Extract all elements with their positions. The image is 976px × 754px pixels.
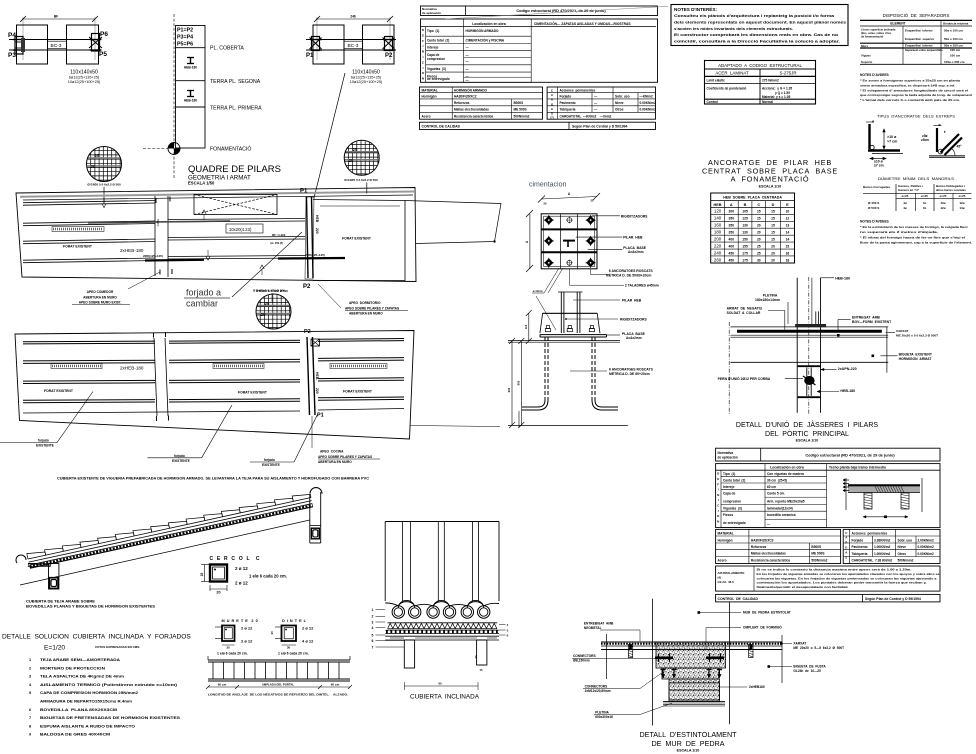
svg-text:I: I	[171, 269, 173, 276]
svg-text:DEL PÒRTIC PRINCIPAL: DEL PÒRTIC PRINCIPAL	[765, 429, 849, 438]
svg-text:ARMAT DE NEGATIU: ARMAT DE NEGATIU	[727, 307, 763, 311]
svg-text:I: I	[159, 269, 161, 276]
svg-text:25: 25	[265, 301, 270, 306]
svg-text:ABERTURA EN MURO: ABERTURA EN MURO	[318, 460, 352, 464]
svg-text:CE Art. 48.3: CE Art. 48.3	[718, 580, 735, 584]
svg-text:ESCALA 1/10: ESCALA 1/10	[759, 184, 782, 188]
svg-text:Control: Control	[707, 100, 718, 104]
svg-text:Ø 400 S: Ø 400 S	[868, 201, 879, 205]
svg-text:(7): (7)	[550, 116, 553, 120]
svg-text:El constructor comprobarà les: El constructor comprobarà les dimensions…	[674, 33, 838, 37]
svg-text:≥7 cm: ≥7 cm	[874, 164, 884, 168]
svg-text:Refuerzos: Refuerzos	[751, 545, 767, 549]
svg-text:PLACA BASE: PLACA BASE	[622, 332, 646, 336]
svg-text:XARXAT: XARXAT	[793, 642, 806, 646]
svg-text:ØF =1.460: ØF =1.460	[272, 233, 286, 237]
svg-text:muro: muro	[156, 219, 160, 226]
svg-text:2.00KN/m2: 2.00KN/m2	[918, 538, 935, 542]
svg-text:HORMIGON ARMAT: HORMIGON ARMAT	[899, 357, 933, 361]
svg-text:BIGUETA EXISTENT: BIGUETA EXISTENT	[899, 353, 933, 357]
svg-text:40: 40	[270, 631, 274, 635]
svg-text:Coeficients de ponderació: Coeficients de ponderació	[707, 87, 747, 91]
svg-text:1: 1	[372, 608, 374, 612]
svg-text:2 TALADRES ø45mm: 2 TALADRES ø45mm	[625, 284, 659, 288]
svg-text:Según Plan de Control y D 59/1: Según Plan de Control y D 59/1994	[865, 597, 921, 601]
svg-text:Material: γ s = 1.05: Material: γ s = 1.05	[762, 95, 790, 99]
svg-text:Flecos: Flecos	[723, 513, 733, 517]
svg-text:7: 7	[29, 716, 31, 720]
svg-text:BIGUETAS DE PRETENSADAS DE HOR: BIGUETAS DE PRETENSADAS DE HORMIGON EXIS…	[40, 716, 181, 720]
svg-text:de fonamentació): de fonamentació)	[861, 35, 883, 39]
svg-text:1.00KN/m2: 1.00KN/m2	[874, 552, 891, 556]
svg-text:BC-3: BC-3	[348, 43, 359, 49]
svg-text:que correspongui segons la tau: que correspongui segons la taula adjunta…	[860, 93, 972, 97]
svg-text:10ø12(25+100+25): 10ø12(25+100+25)	[68, 80, 101, 84]
svg-text:4: 4	[372, 626, 374, 630]
svg-text:PL. COBERTA: PL. COBERTA	[210, 46, 244, 52]
svg-text:TEJA ARABE SEMI—AMORTERADA: TEJA ARABE SEMI—AMORTERADA	[40, 658, 120, 662]
svg-text:220: 220	[315, 388, 319, 394]
svg-text:compresion: compresion	[723, 500, 741, 504]
svg-text:I: I	[165, 332, 167, 339]
svg-text:AMPLADA DEL PORTAL: AMPLADA DEL PORTAL	[262, 683, 295, 687]
svg-text:180: 180	[714, 230, 722, 235]
svg-text:forjado: forjado	[174, 454, 185, 458]
svg-text:350: 350	[729, 231, 735, 235]
svg-text:B500S: B500S	[811, 545, 821, 549]
svg-text:125: 125	[742, 217, 748, 221]
svg-text:continuación los apuntalados.: continuación los apuntalados. Los puntal…	[757, 581, 927, 585]
svg-text:BIGUETA DE FUSTA: BIGUETA DE FUSTA	[793, 665, 826, 669]
svg-text:A FONAMENTACIÓ: A FONAMENTACIÓ	[731, 175, 810, 184]
svg-text:Intereje: Intereje	[723, 485, 735, 489]
svg-text:50ø o 100 cm: 50ø o 100 cm	[944, 29, 963, 33]
svg-text:BC-3: BC-3	[51, 43, 62, 49]
svg-text:CARGATOTAL —KN/m2 —/mm2: CARGATOTAL —KN/m2 —/mm2	[560, 114, 612, 118]
svg-text:400: 400	[729, 237, 735, 241]
svg-text:1 e/ø 6 cada 20 cm.: 1 e/ø 6 cada 20 cm.	[249, 574, 287, 579]
svg-text:ø>25: ø>25	[921, 194, 928, 198]
svg-text:sense armadura específica, es: sense armadura específica, es disposarà …	[860, 83, 955, 87]
svg-text:3: 3	[372, 620, 374, 624]
svg-text:ESCALA 1/10: ESCALA 1/10	[796, 439, 819, 443]
svg-text:Si no se indica lo contrario l: Si no se indica lo contrario la distanci…	[757, 568, 912, 572]
svg-text:10ø: 10ø	[940, 201, 945, 205]
svg-text:15: 15	[757, 210, 761, 214]
svg-text:Emparrillat inferior: Emparrillat inferior	[905, 44, 934, 48]
svg-text:Nieve: Nieve	[615, 101, 624, 105]
svg-text:APEO DORMITORIO: APEO DORMITORIO	[349, 301, 381, 305]
svg-text:de entrevigado: de entrevigado	[723, 521, 746, 525]
svg-text:Nieve: Nieve	[898, 545, 907, 549]
svg-text:13: 13	[786, 224, 790, 228]
svg-text:CAPA DE COMPRESION HORMIGON 25: CAPA DE COMPRESION HORMIGON 25N/mm2	[40, 691, 138, 695]
svg-text:>10 ø: >10 ø	[887, 135, 897, 139]
svg-text:Tipo (1): Tipo (1)	[723, 472, 735, 476]
svg-text:Emparrillat inferior: Emparrillat inferior	[905, 29, 934, 33]
svg-text:20: 20	[91, 164, 96, 169]
svg-text:CONTROL DE CALIDAD: CONTROL DE CALIDAD	[422, 125, 461, 129]
svg-text:B500S: B500S	[514, 101, 524, 105]
svg-text:ABERTURA EN MURO: ABERTURA EN MURO	[83, 296, 117, 300]
svg-text:5: 5	[29, 691, 31, 695]
svg-text:6ø12(25+135+25): 6ø12(25+135+25)	[351, 76, 382, 80]
svg-text:MUR DE PEDRA ESTINTOLAT: MUR DE PEDRA ESTINTOLAT	[743, 611, 791, 615]
svg-text:220: 220	[714, 243, 722, 248]
svg-text:Techo planta baja tramo interm: Techo planta baja tramo intermedio	[829, 466, 886, 470]
svg-text:Sobr. uso: Sobr. uso	[898, 538, 913, 542]
svg-text:7ø: 7ø	[923, 206, 927, 210]
svg-text:D: D	[772, 203, 775, 207]
svg-text:HEB-180: HEB-180	[184, 99, 197, 103]
svg-text:60: 60	[438, 682, 442, 686]
svg-text:800: 800	[517, 380, 521, 385]
svg-text:20: 20	[757, 237, 761, 241]
svg-text:I: I	[156, 416, 158, 423]
svg-text:160: 160	[714, 223, 722, 228]
svg-text:15: 15	[771, 224, 775, 228]
svg-text:900: 900	[507, 387, 511, 392]
svg-text:Acero: Acero	[422, 114, 431, 118]
svg-text:25: 25	[757, 251, 761, 255]
svg-text:TERRA PL. SEGONA: TERRA PL. SEGONA	[210, 79, 261, 85]
svg-text:EXISTENTE: EXISTENTE	[172, 459, 190, 463]
svg-text:ME 500S: ME 500S	[811, 552, 824, 556]
svg-text:ME 20x20 o 5—5 6x2,2 Ø 5: ME 20x20 o 5—5 6x2,2 Ø 500T	[793, 646, 844, 650]
svg-text:100 cm: 100 cm	[950, 54, 961, 58]
svg-text:ø>25: ø>25	[959, 194, 966, 198]
svg-text:Límit elàstic: Límit elàstic	[707, 79, 726, 83]
svg-text:30: 30	[226, 646, 230, 650]
svg-text:12ø: 12ø	[959, 201, 964, 205]
svg-text:110: 110	[524, 324, 528, 329]
svg-text:200: 200	[714, 236, 722, 241]
svg-text:XARXAT: XARXAT	[896, 329, 909, 333]
svg-text:ØB,150mm: ØB,150mm	[573, 659, 590, 663]
svg-text:Mallas electrosoldadas: Mallas electrosoldadas	[751, 552, 786, 556]
svg-text:APEO SOBRE PILARES Y ZAPATAS: APEO SOBRE PILARES Y ZAPATAS	[345, 307, 399, 311]
svg-text:P2: P2	[385, 53, 393, 59]
svg-text:P2: P2	[304, 329, 311, 335]
svg-text:HORMIGÓN ARMADO: HORMIGÓN ARMADO	[466, 28, 500, 33]
svg-text:Barres Corrugades: Barres Corrugades	[863, 185, 891, 189]
svg-text:7: 7	[372, 645, 374, 649]
svg-text:105: 105	[742, 210, 748, 214]
svg-text:FORAT EXISTENT: FORAT EXISTENT	[342, 237, 372, 241]
svg-text:F: F	[717, 482, 719, 486]
svg-text:no superarà els 2 metres d'alç: no superarà els 2 metres d'alçada.	[860, 230, 938, 234]
svg-text:Localización en obra: Localización en obra	[472, 22, 506, 26]
svg-text:MORTERO DE PROTECCION: MORTERO DE PROTECCION	[40, 666, 105, 670]
svg-text:ELEMENT: ELEMENT	[890, 22, 905, 26]
svg-text:2 ø 12: 2 ø 12	[241, 639, 253, 644]
svg-text:9: 9	[29, 733, 31, 737]
svg-text:10ø12(25+100+25): 10ø12(25+100+25)	[350, 80, 383, 84]
svg-text:CUBIERTA DE TEJA ARABE SOBRE: CUBIERTA DE TEJA ARABE SOBRE	[26, 600, 95, 604]
svg-text:15: 15	[771, 237, 775, 241]
svg-text:de entrevigado: de entrevigado	[427, 77, 450, 81]
svg-text:15: 15	[757, 217, 761, 221]
svg-text:NEOMETAL: NEOMETAL	[584, 626, 602, 630]
svg-text:CONNECTORS: CONNECTORS	[585, 685, 608, 689]
svg-text:P6: P6	[100, 31, 108, 38]
svg-text:AxAx2mm: AxAx2mm	[626, 336, 642, 340]
svg-text:Tabiquería: Tabiquería	[560, 108, 576, 112]
svg-text:220: 220	[315, 228, 319, 234]
svg-text:100ø o 200 cm: 100ø o 200 cm	[944, 60, 965, 64]
svg-text:TIPUS D'ANCORATGE DELS ESTR: TIPUS D'ANCORATGE DELS ESTREPS	[877, 114, 955, 119]
svg-text:2xHEB-180: 2xHEB-180	[120, 248, 144, 253]
svg-text:forjado: forjado	[264, 458, 275, 462]
svg-text:Tabiquería: Tabiquería	[852, 552, 868, 556]
svg-text:25: 25	[757, 244, 761, 248]
svg-text:E: E	[786, 203, 789, 207]
svg-text:20: 20	[261, 312, 266, 317]
svg-text:Hormigón: Hormigón	[422, 94, 437, 98]
svg-text:FORAT EXISTENT: FORAT EXISTENT	[44, 389, 74, 393]
svg-text:Lloses superficie inclinada: Lloses superficie inclinada	[861, 28, 896, 32]
svg-text:500N/mm2: 500N/mm2	[514, 114, 530, 118]
svg-text:ME 500S: ME 500S	[514, 108, 527, 112]
svg-text:PILAR HEB: PILAR HEB	[623, 236, 643, 240]
svg-text:colocaran las viguetas. En los: colocaran las viguetas. En los forjados …	[757, 576, 938, 580]
svg-text:12ø: 12ø	[940, 206, 945, 210]
svg-text:ME 20x20 o 5-5 6x2.2 Ø 500T: ME 20x20 o 5-5 6x2.2 Ø 500T	[896, 334, 938, 338]
svg-text:* L'armat dels cèrcols C-s cou: * L'armat dels cèrcols C-s coubertà amb …	[860, 98, 960, 102]
svg-text:450: 450	[729, 258, 735, 262]
svg-text:ADAPTADO A CODIGO ESTRUCTUR: ADAPTADO A CODIGO ESTRUCTURAL	[718, 63, 802, 68]
svg-text:155: 155	[742, 244, 748, 248]
svg-text:1 e/ø 6 cada 20 cm.: 1 e/ø 6 cada 20 cm.	[217, 652, 248, 656]
svg-text:15: 15	[771, 210, 775, 214]
svg-text:Ø E4Ø5 S-5 4Ø2 Ø 500: Ø E4Ø5 S-5 4Ø2 Ø 500	[256, 289, 288, 293]
svg-text:175: 175	[742, 251, 748, 255]
svg-text:18: 18	[786, 258, 790, 262]
svg-text:ESCALA 1/10: ESCALA 1/10	[677, 749, 700, 753]
svg-text:0.00KN/m2: 0.00KN/m2	[918, 545, 935, 549]
svg-text:HA30/F/20/XC3: HA30/F/20/XC3	[751, 538, 774, 542]
svg-text:tot. 459 (2): tot. 459 (2)	[270, 241, 283, 245]
svg-text:DETALL D'ESTINTOLAMENT: DETALL D'ESTINTOLAMENT	[639, 730, 737, 739]
svg-text:BOVEDILLAS PLANAS Y BIGUETAS D: BOVEDILLAS PLANAS Y BIGUETAS DE HORMIGON…	[26, 605, 155, 609]
svg-text:D I N T E L: D I N T E L	[282, 619, 307, 623]
svg-text:Consulteu els plànols d'arquit: Consulteu els plànols d'arquitectura i r…	[674, 14, 834, 18]
svg-text:I: I	[169, 196, 171, 203]
svg-text:forjado a: forjado a	[186, 288, 221, 298]
svg-text:25: 25	[353, 147, 358, 152]
svg-text:6: 6	[372, 639, 374, 643]
svg-text:30 cm (25+5): 30 cm (25+5)	[767, 479, 787, 483]
svg-text:B: B	[744, 203, 747, 207]
svg-text:Viguetas (3): Viguetas (3)	[723, 507, 742, 511]
svg-text:2: 2	[29, 666, 31, 670]
svg-text:* El solapament d' armadures l: * El solapament d' armadures longitudina…	[860, 88, 968, 92]
svg-text:10: 10	[786, 210, 790, 214]
svg-text:altres barres curvades: altres barres curvades	[936, 188, 966, 192]
svg-text:260: 260	[714, 257, 722, 262]
svg-text:Hormigón: Hormigón	[718, 538, 733, 542]
svg-text:20: 20	[757, 224, 761, 228]
svg-text:300: 300	[729, 210, 735, 214]
svg-text:10x20(4.23): 10x20(4.23)	[229, 227, 252, 232]
svg-text:Capa de: Capa de	[723, 492, 736, 496]
svg-text:2xM12s/20,80mm: 2xM12s/20,80mm	[585, 689, 611, 693]
svg-text:En los forjados de viguetas ar: En los forjados de viguetas armadas se c…	[757, 572, 941, 576]
svg-text:BOV—FORM EXISTENT: BOV—FORM EXISTENT	[852, 320, 892, 324]
svg-text:APUNTALAMIENTO: APUNTALAMIENTO	[718, 571, 746, 575]
svg-text:CUBIERTA EXISTENTE DE VIGUERIA: CUBIERTA EXISTENTE DE VIGUERIA PREFABRIC…	[57, 477, 370, 481]
svg-text:2 ø 12: 2 ø 12	[241, 626, 253, 631]
svg-text:APEO SOBRE PILARES Y ZAPATAS: APEO SOBRE PILARES Y ZAPATAS	[318, 455, 372, 459]
svg-text:246: 246	[350, 15, 356, 19]
svg-text:ø: ø	[872, 120, 874, 124]
svg-text:130: 130	[742, 231, 748, 235]
svg-text:130: 130	[742, 224, 748, 228]
svg-text:* En la estintolació de les ma: * En la estintolació de les masses de fo…	[860, 225, 969, 229]
svg-text:NOTES D'AVDEES: NOTES D'AVDEES	[860, 220, 890, 224]
svg-text:150: 150	[742, 237, 748, 241]
svg-text:Tipo (1): Tipo (1)	[427, 29, 439, 33]
svg-text:Forjado: Forjado	[560, 94, 572, 98]
svg-text:N: N	[422, 50, 424, 54]
svg-text:cimentacion: cimentacion	[529, 182, 566, 189]
svg-text:600x300x16: 600x300x16	[595, 715, 613, 719]
svg-text:Arm. reporto ME20x20ø5: Arm. reporto ME20x20ø5	[767, 500, 805, 504]
svg-text:P1: P1	[306, 53, 314, 59]
svg-text:FONAMENTACIÓ: FONAMENTACIÓ	[210, 146, 251, 153]
svg-text:Soports: Soports	[861, 60, 873, 64]
svg-text:compresion: compresion	[427, 57, 445, 61]
svg-text:DIÀMETRE MÍNIM DELS MANDRIL: DIÀMETRE MÍNIM DELS MANDRILS	[878, 176, 954, 181]
svg-text:500N/mm2: 500N/mm2	[811, 558, 827, 562]
svg-text:EXISTENTE: EXISTENTE	[262, 463, 280, 467]
svg-text:F: F	[422, 39, 424, 43]
svg-text:TELA ASFALTICA DE 4Kg/m2 DE 4m: TELA ASFALTICA DE 4Kg/m2 DE 4mm	[40, 675, 125, 679]
svg-text:Normativa: Normativa	[718, 451, 734, 455]
svg-text:PLETINA: PLETINA	[763, 294, 778, 298]
svg-text:EXISTENTE: EXISTENTE	[36, 444, 54, 448]
svg-text:Codigo estructural (RD 470/202: Codigo estructural (RD 470/2021, de 29 d…	[805, 453, 895, 458]
svg-text:14: 14	[786, 231, 790, 235]
svg-text:P1: P1	[300, 189, 308, 195]
svg-text:Con viguetas de madera: Con viguetas de madera	[767, 472, 804, 476]
svg-text:PILAR HEB: PILAR HEB	[622, 299, 642, 303]
svg-text:15: 15	[771, 217, 775, 221]
svg-text:Otros: Otros	[898, 552, 907, 556]
svg-text:25: 25	[95, 153, 100, 158]
svg-text:(llos, soles, voltes i llos: (llos, soles, voltes i llos	[861, 31, 892, 35]
svg-text:180x180x14mm: 180x180x14mm	[755, 298, 780, 302]
svg-text:coincidir, consultarà a la Dir: coincidir, consultarà a la Direcció Facu…	[674, 39, 840, 43]
svg-text:E: E	[422, 33, 424, 37]
svg-text:7ø: 7ø	[923, 201, 927, 205]
svg-text:COTAS EXPRESADAS EN CMS.: COTAS EXPRESADAS EN CMS.	[95, 645, 140, 649]
svg-text:—KN/m2: —KN/m2	[640, 94, 654, 98]
svg-text:25: 25	[200, 573, 204, 577]
svg-text:14: 14	[786, 237, 790, 241]
svg-text:Mallas electrosoldadas: Mallas electrosoldadas	[454, 108, 489, 112]
svg-text:de aplicación: de aplicación	[422, 11, 441, 15]
svg-text:Normal: Normal	[762, 100, 773, 104]
svg-text:MATERIAL: MATERIAL	[718, 531, 734, 535]
svg-text:de aplicación: de aplicación	[718, 455, 738, 459]
svg-text:AISLAMIENTO TERMICO (Poliestir: AISLAMIENTO TERMICO (Poliestireno extrui…	[40, 683, 178, 687]
svg-text:Murs: Murs	[861, 44, 868, 48]
svg-text:P1: P1	[317, 413, 324, 419]
svg-text:S: S	[845, 555, 847, 559]
svg-text:4 ø 12: 4 ø 12	[302, 639, 314, 644]
svg-text:NOTES D'AVDEES: NOTES D'AVDEES	[860, 73, 890, 77]
svg-text:SOLDAT A COLLAR: SOLDAT A COLLAR	[727, 311, 761, 315]
svg-text:Refuerzos: Refuerzos	[454, 101, 470, 105]
svg-text:45°: 45°	[957, 145, 963, 149]
svg-text:2xHEB180: 2xHEB180	[749, 685, 765, 689]
svg-text:20: 20	[757, 231, 761, 235]
svg-text:ø<25: ø<25	[940, 194, 947, 198]
svg-text:CARGATOTAL 7.38 KN/m2 50: CARGATOTAL 7.38 KN/m2 500N/mm2	[852, 558, 914, 562]
svg-text:140: 140	[714, 216, 722, 221]
svg-text:0.00KN/m2: 0.00KN/m2	[640, 101, 657, 105]
svg-text:OMPLERT DE FORMIGÓ: OMPLERT DE FORMIGÓ	[743, 625, 782, 630]
svg-text:APEO COMEDOR: APEO COMEDOR	[87, 290, 114, 294]
svg-text:Ø 500 S: Ø 500 S	[868, 206, 879, 210]
svg-text:(4): (4)	[718, 576, 722, 580]
svg-text:AxAx2mm: AxAx2mm	[628, 250, 644, 254]
svg-text:dels elements representats en: dels elements representats en aquest doc…	[674, 21, 846, 25]
svg-text:Vigues: Vigues	[861, 54, 871, 58]
svg-text:20: 20	[349, 158, 354, 163]
svg-text:TERRA PL. PRIMERA: TERRA PL. PRIMERA	[210, 106, 262, 112]
svg-text:forjado: forjado	[38, 439, 49, 443]
svg-text:DETALL D'UNIÓ DE JÀSSERES: DETALL D'UNIÓ DE JÀSSERES I PILARS	[736, 420, 878, 429]
svg-text:cambiar: cambiar	[186, 299, 218, 309]
svg-text:30: 30	[757, 258, 761, 262]
svg-text:Intereje: Intereje	[427, 46, 439, 50]
svg-text:4ø: 4ø	[903, 206, 907, 210]
svg-text:2 ø 12: 2 ø 12	[235, 566, 248, 571]
svg-text:I: I	[155, 198, 157, 205]
svg-text:CONNECTORS: CONNECTORS	[573, 654, 596, 658]
svg-text:20: 20	[771, 244, 775, 248]
svg-text:Canto 5 cm.: Canto 5 cm.	[767, 492, 785, 496]
svg-text:4ø: 4ø	[903, 201, 907, 205]
svg-text:CIMENTACIÓN y PISCINA: CIMENTACIÓN y PISCINA	[466, 37, 505, 42]
svg-text:Pavimento: Pavimento	[852, 545, 868, 549]
svg-text:CUBIERTA INCLINADA: CUBIERTA INCLINADA	[410, 694, 480, 701]
svg-text:P3: P3	[8, 52, 16, 59]
svg-text:FORAT EXISTENT: FORAT EXISTENT	[238, 391, 268, 395]
svg-text:P4: P4	[8, 32, 16, 39]
svg-text:Acciones permanentes: Acciones permanentes	[852, 531, 888, 535]
svg-text:2: 2	[372, 615, 374, 619]
svg-text:Resistencia característica: Resistencia característica	[751, 558, 790, 562]
svg-text:Ø E4Ø5 5-5 6x2.2 Ø 500: Ø E4Ø5 5-5 6x2.2 Ø 500	[87, 183, 121, 187]
svg-text:s'acoten les mides invariants: s'acoten les mides invariants dels eleme…	[674, 27, 793, 31]
svg-text:3.38KN/m2: 3.38KN/m2	[874, 538, 891, 542]
svg-text:400: 400	[729, 244, 735, 248]
svg-text:30: 30	[287, 646, 291, 650]
svg-text:ENTREGAT AMB: ENTREGAT AMB	[852, 316, 880, 320]
svg-text:HEB-180: HEB-180	[835, 276, 850, 280]
svg-text:>7 cm: >7 cm	[887, 140, 897, 144]
svg-text:fluor de la pasta aglomerant,: fluor de la pasta aglomerant, cap a la s…	[860, 241, 972, 245]
svg-text:* El vibrat del formigó haurà: * El vibrat del formigó haurà de fer-se …	[860, 235, 965, 239]
svg-text:RIGIDITZADORS: RIGIDITZADORS	[621, 214, 648, 218]
svg-text:QUADRE DE PILARS: QUADRE DE PILARS	[188, 164, 281, 175]
svg-text:CIMENTACIÓN— ZAPATAS AISLADAS: CIMENTACIÓN— ZAPATAS AISLADAS Y UNIDAS—R…	[534, 21, 631, 26]
svg-text:1.00KN/m2: 1.00KN/m2	[874, 545, 891, 549]
svg-text:M U R E T E 2 0: M U R E T E 2 0	[222, 619, 259, 623]
